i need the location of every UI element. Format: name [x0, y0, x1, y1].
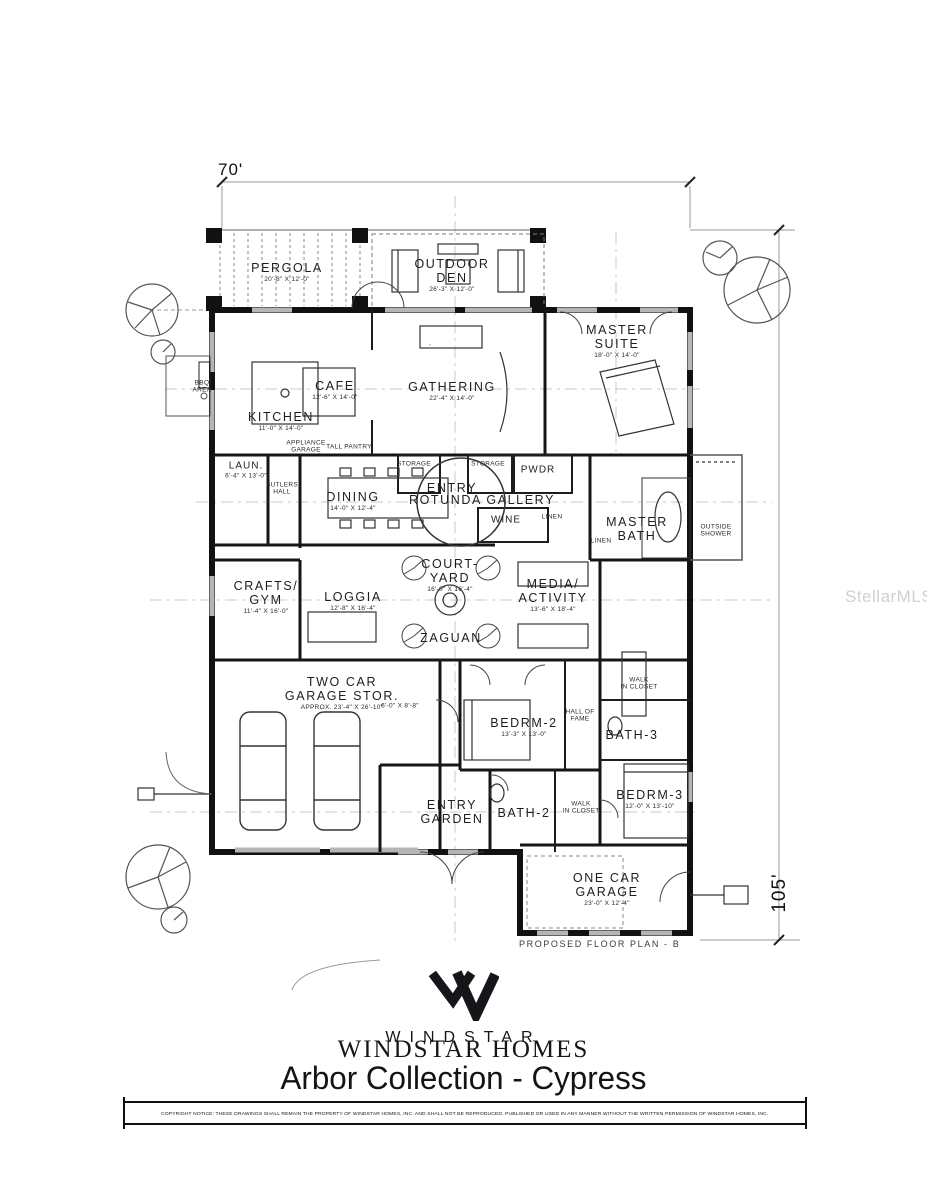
- plan-caption: PROPOSED FLOOR PLAN - B: [519, 939, 680, 949]
- room-label: BATH-2: [497, 806, 550, 820]
- width-dimension-label: 70': [218, 160, 243, 180]
- room-label: TALL PANTRY: [326, 443, 372, 450]
- room-label: ONE CARGARAGE23'-0" X 12'-4": [573, 871, 641, 907]
- room-label: LAUN.6'-4" X 13'-0": [225, 460, 267, 479]
- room-label: PERGOLA20'-8" X 12'-0": [251, 261, 323, 283]
- copyright-notice: COPYRIGHT NOTICE: THESE DRAWINGS SHALL R…: [161, 1110, 768, 1116]
- room-label: GATHERING22'-4" X 14'-0": [408, 380, 496, 402]
- room-label: MEDIA/ACTIVITY13'-6" X 18'-4": [518, 577, 587, 613]
- room-label: BUTLERSHALL: [266, 482, 298, 497]
- copyright-bar-left-tick: [123, 1097, 125, 1129]
- room-label: OUTSIDESHOWER: [700, 524, 731, 539]
- copyright-bar-right-tick: [805, 1097, 807, 1129]
- room-label: STORAGE: [471, 460, 505, 467]
- room-label: HALL OFFAME: [566, 709, 595, 724]
- room-label: LINEN: [542, 513, 563, 520]
- room-label: LINEN: [591, 537, 612, 544]
- room-label: WALKIN CLOSET: [562, 801, 599, 816]
- room-label: WINE: [491, 514, 521, 525]
- room-label: BBQAREA: [193, 380, 212, 395]
- room-label: ROTUNDA GALLERY: [409, 493, 555, 507]
- room-label: KITCHEN11'-0" X 14'-0": [248, 410, 314, 432]
- floor-plan-page: PERGOLA20'-8" X 12'-0"OUTDOORDEN26'-3" X…: [0, 0, 927, 1200]
- room-label: 6'-0" X 8'-8": [381, 702, 419, 709]
- room-label: DINING14'-0" X 12'-4": [326, 490, 379, 512]
- room-label: OUTDOORDEN26'-3" X 12'-0": [414, 257, 489, 293]
- room-label: BATH-3: [605, 728, 658, 742]
- room-label: MASTERSUITE18'-0" X 14'-0": [586, 323, 648, 359]
- room-label: ZAGUAN: [420, 631, 482, 645]
- room-label: CRAFTS/GYM11'-4" X 16'-0": [234, 579, 299, 615]
- windstar-logo-icon: [427, 969, 499, 1021]
- room-label: COURT-YARD16'-0" X 16'-4": [421, 557, 478, 593]
- room-label: LOGGIA12'-8" X 16'-4": [324, 590, 382, 612]
- plan-title: Arbor Collection - Cypress: [9, 1060, 917, 1097]
- copyright-bar: COPYRIGHT NOTICE: THESE DRAWINGS SHALL R…: [125, 1101, 805, 1125]
- height-dimension-label: 105': [769, 848, 791, 938]
- room-label: CAFE12'-6" X 14'-0": [312, 379, 358, 401]
- room-label: MASTERBATH: [606, 515, 668, 543]
- room-label: BEDRM-213'-3" X 13'-0": [490, 716, 557, 738]
- room-label: APPLIANCEGARAGE: [286, 440, 325, 455]
- stellar-mls-watermark: StellarMLS: [845, 587, 927, 607]
- room-label: BEDRM-312'-0" X 13'-10": [616, 788, 683, 810]
- room-label: PWDR: [521, 464, 556, 475]
- room-label: WALKIN CLOSET: [620, 677, 657, 692]
- room-label: STORAGE: [397, 460, 431, 467]
- room-label: ENTRYGARDEN: [420, 798, 483, 826]
